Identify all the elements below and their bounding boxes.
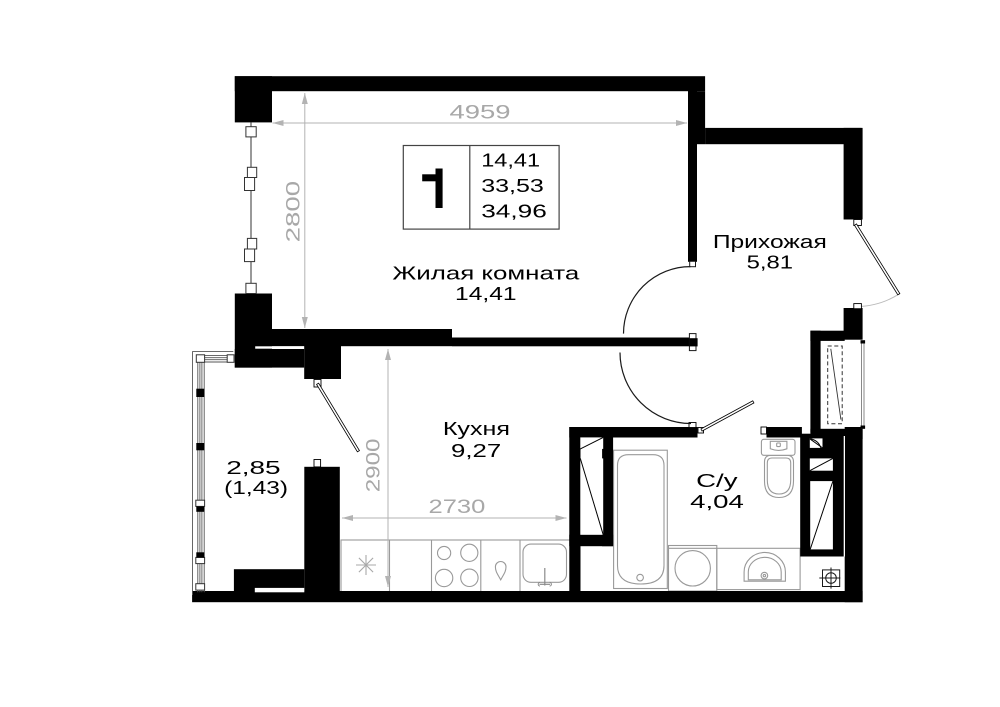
- svg-text:2800: 2800: [282, 181, 304, 243]
- svg-text:14,41: 14,41: [455, 283, 517, 304]
- svg-text:34,96: 34,96: [481, 201, 547, 221]
- svg-text:Кухня: Кухня: [443, 418, 510, 439]
- svg-text:2730: 2730: [429, 496, 486, 517]
- svg-text:(1,43): (1,43): [224, 477, 288, 498]
- svg-text:2,85: 2,85: [226, 458, 280, 478]
- svg-text:33,53: 33,53: [481, 175, 544, 196]
- svg-text:5,81: 5,81: [747, 252, 793, 273]
- svg-text:4959: 4959: [449, 102, 510, 123]
- svg-text:9,27: 9,27: [451, 440, 501, 461]
- svg-text:14,41: 14,41: [481, 151, 540, 171]
- svg-text:Прихожая: Прихожая: [713, 231, 827, 252]
- svg-text:2900: 2900: [362, 439, 384, 493]
- svg-text:С/у: С/у: [696, 471, 738, 491]
- svg-text:Жилая комната: Жилая комната: [392, 263, 579, 283]
- svg-text:4,04: 4,04: [690, 492, 744, 512]
